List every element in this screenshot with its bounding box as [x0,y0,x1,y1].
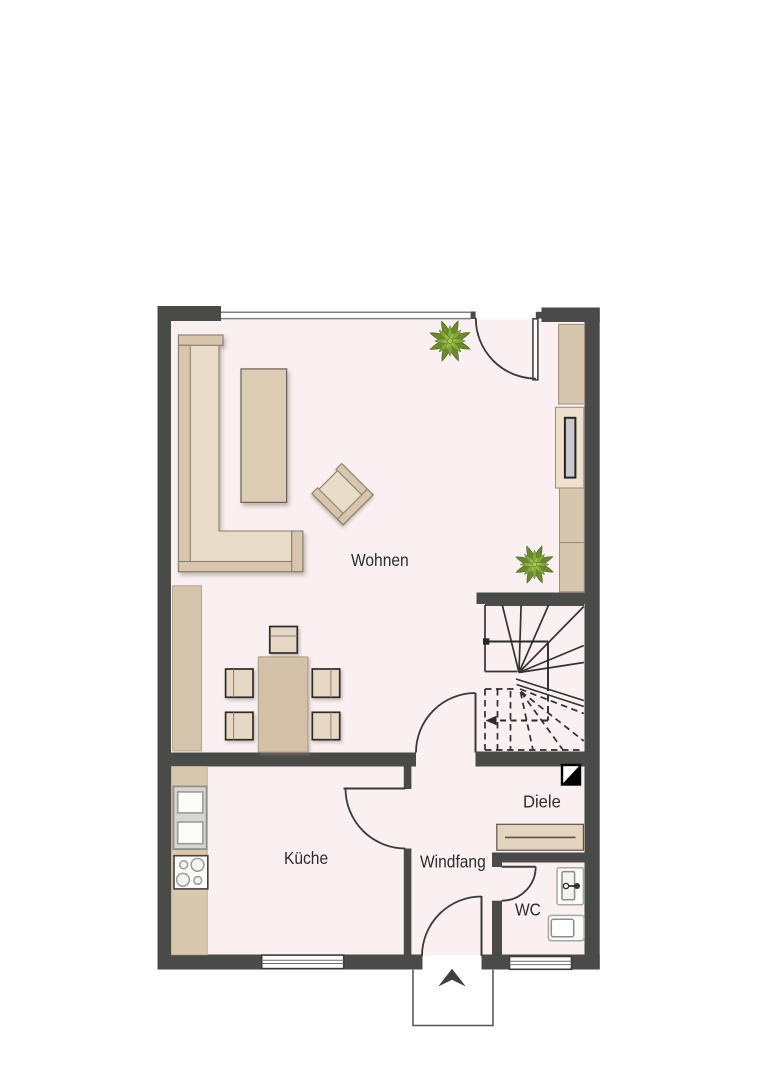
svg-text:WC: WC [515,900,541,920]
svg-text:Windfang: Windfang [420,852,486,872]
svg-text:Diele: Diele [523,792,561,811]
svg-text:Wohnen: Wohnen [351,550,409,570]
svg-text:Küche: Küche [284,848,328,868]
